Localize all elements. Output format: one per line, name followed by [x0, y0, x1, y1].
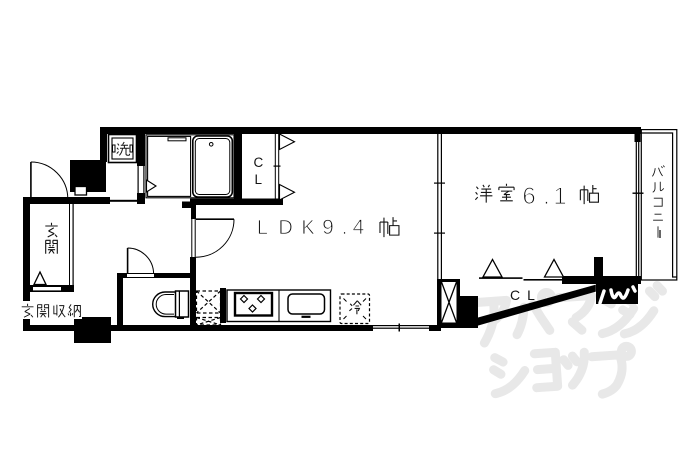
svg-text:L: L	[257, 217, 268, 239]
svg-text:.: .	[543, 183, 550, 210]
svg-text:9: 9	[322, 216, 334, 239]
svg-text:C: C	[254, 155, 264, 170]
svg-text:K: K	[301, 217, 315, 239]
svg-text:4: 4	[353, 216, 365, 239]
svg-text:6: 6	[522, 183, 535, 210]
svg-text:CL: CL	[510, 287, 542, 303]
svg-text:L: L	[255, 172, 263, 187]
svg-text:D: D	[278, 217, 292, 239]
svg-text:.: .	[342, 216, 348, 239]
svg-text:1: 1	[553, 183, 566, 210]
